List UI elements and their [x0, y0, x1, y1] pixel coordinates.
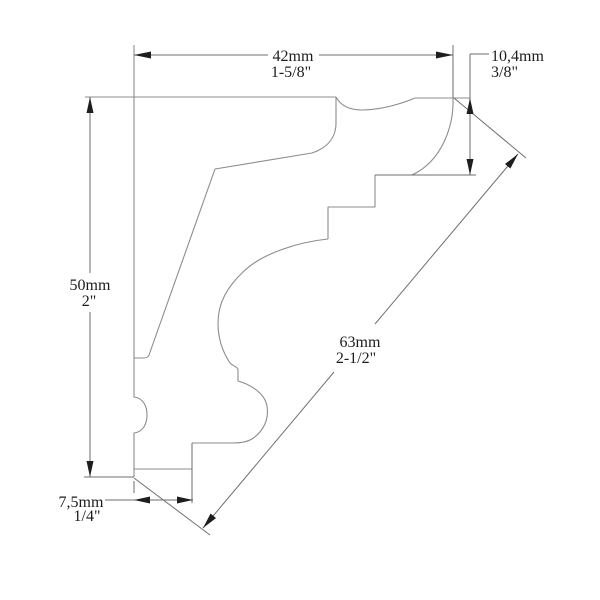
arrow-top-width-left: [134, 52, 151, 59]
dimension-lines: [90, 54, 518, 528]
label-top-right-drop-mm: 10,4mm: [491, 48, 544, 65]
arrow-bottom-width-right: [177, 497, 193, 504]
ceiling-contact-relief-line: [336, 97, 470, 110]
face-step-line: [328, 175, 375, 239]
arrow-face-bottom: [203, 514, 216, 529]
profile-lines: [85, 45, 470, 477]
ext-face-top: [454, 98, 526, 158]
label-diagonal-face-mm: 63mm: [340, 334, 381, 351]
arrow-drop-down: [467, 159, 474, 175]
arrowheads: [87, 52, 519, 529]
label-bottom-width-inch: 1/4": [74, 508, 101, 525]
arrow-face-top: [505, 154, 518, 169]
face-top-cove-line: [412, 98, 453, 175]
wall-line-with-bead: [134, 45, 147, 477]
label-top-width-inch: 1-5/8": [271, 64, 311, 81]
arrow-bottom-width-left: [134, 497, 150, 504]
technical-drawing-canvas: 42mm 1-5/8" 10,4mm 3/8" 50mm 2" 63mm 2-1…: [0, 0, 600, 600]
dimension-labels: 42mm 1-5/8" 10,4mm 3/8" 50mm 2" 63mm 2-1…: [59, 48, 545, 525]
arrow-top-width-right: [436, 52, 453, 59]
molding-technical-drawing: 42mm 1-5/8" 10,4mm 3/8" 50mm 2" 63mm 2-1…: [0, 0, 600, 600]
label-top-width-mm: 42mm: [273, 48, 314, 65]
label-diagonal-face-inch: 2-1/2": [336, 350, 376, 367]
back-cavity-line: [134, 97, 336, 358]
face-ogee-torus-line: [192, 239, 328, 443]
extension-lines: [84, 45, 526, 535]
arrow-height-down: [87, 461, 94, 477]
ext-face-bottom: [134, 478, 210, 535]
label-left-height-inch: 2": [82, 293, 97, 310]
label-left-height-mm: 50mm: [70, 277, 111, 294]
arrow-drop-up: [467, 98, 474, 114]
label-top-right-drop-inch: 3/8": [491, 64, 518, 81]
arrow-height-up: [87, 97, 94, 113]
